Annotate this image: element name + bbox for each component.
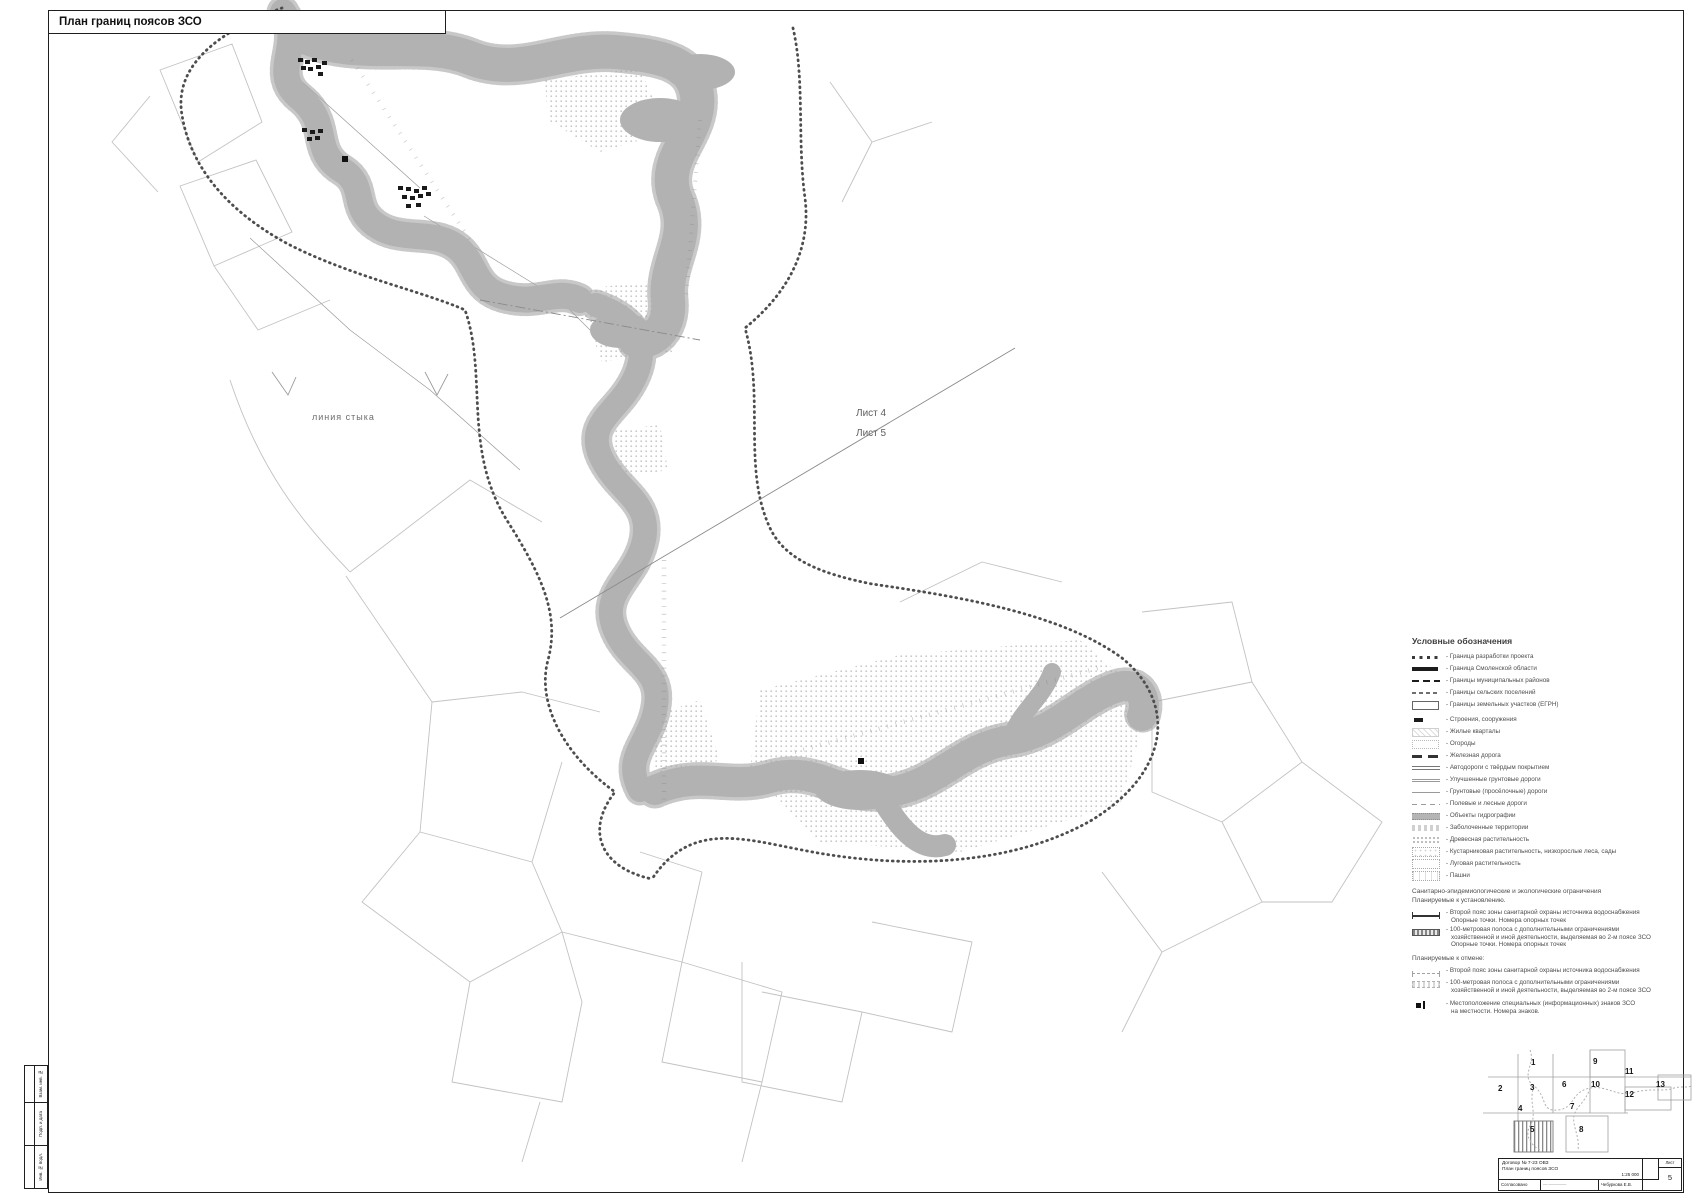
- legend-item-label: - Улучшенные грунтовые дороги: [1446, 776, 1541, 784]
- legend-item-label: - 100-метровая полоса с дополнительными …: [1446, 979, 1651, 994]
- legend-item: - Пашни: [1412, 870, 1697, 882]
- paved-road-symbol: [1412, 766, 1440, 770]
- sheet-number: 10: [1591, 1081, 1600, 1089]
- info-sign-symbol: [1416, 1003, 1421, 1008]
- legend-item-label: - Границы земельных участков (ЕГРН): [1446, 701, 1559, 709]
- strip-100m-cancel-symbol: [1412, 981, 1440, 988]
- district-boundary-layer: [480, 300, 1015, 618]
- sheet-number: 9: [1593, 1058, 1597, 1066]
- side-cell: Подп. и дата: [24, 1102, 48, 1146]
- drawing-sheet: { "page": { "title": "План границ поясов…: [0, 0, 1697, 1200]
- shrub-symbol: [1412, 847, 1440, 857]
- doc-title: План границ поясов ЗСО: [1502, 1167, 1639, 1173]
- title-block-spacer: [1643, 1159, 1659, 1180]
- legend-item: - Местоположение специальных (информацио…: [1412, 1000, 1697, 1015]
- legend-item-label: - Граница Смоленской области: [1446, 665, 1537, 673]
- side-cell-label: Инв. № подл.: [38, 1153, 43, 1181]
- planned-cancel-header: Планируемые к отмене:: [1412, 955, 1697, 963]
- side-cell-label: Подп. и дата: [38, 1111, 43, 1137]
- legend-item: - Грунтовые (просёлочные) дороги: [1412, 786, 1697, 798]
- legend-item-label: - Пашни: [1446, 872, 1470, 880]
- legend-item-label: - Граница разработки проекта: [1446, 653, 1534, 661]
- railway-symbol: [1412, 755, 1440, 758]
- sheet-number: 13: [1656, 1081, 1665, 1089]
- parcel-boundary-symbol: [1412, 701, 1439, 710]
- title-block: Договор № 7-23 ОВЗ План границ поясов ЗС…: [1498, 1158, 1682, 1191]
- legend-item-label: - Второй пояс зоны санитарной охраны ист…: [1446, 967, 1640, 975]
- scale-value: 1:25 000: [1621, 1172, 1639, 1178]
- legend-item-label: - 100-метровая полоса с дополнительными …: [1446, 926, 1651, 949]
- legend-item-label: - Строения, сооружения: [1446, 716, 1517, 724]
- sheet-cell: Лист 5: [1659, 1159, 1681, 1190]
- legend-item-label: - Жилые кварталы: [1446, 728, 1500, 736]
- legend-item-label: - Местоположение специальных (информацио…: [1446, 1000, 1635, 1015]
- sheet-number: 7: [1570, 1103, 1574, 1111]
- legend: Условные обозначения - Граница разработк…: [1412, 636, 1697, 1017]
- sheet4-label: Лист 4: [856, 408, 886, 419]
- oblast-boundary-symbol: [1412, 667, 1438, 671]
- second-belt-cancel-symbol: [1412, 973, 1440, 974]
- improved-dirt-road-symbol: [1412, 779, 1440, 782]
- parcels-layer: [112, 44, 1382, 1162]
- meadow-symbol: [1412, 859, 1440, 869]
- signatory-cell: Чебуркова Е.В.: [1599, 1180, 1643, 1190]
- legend-item-label: - Огороды: [1446, 740, 1475, 748]
- side-stamp-strip: Взам. инв. № Подп. и дата Инв. № подл.: [24, 1066, 48, 1189]
- field-road-symbol: [1412, 804, 1440, 805]
- sheet-index-grid: [1478, 1042, 1693, 1154]
- legend-item-label: - Границы муниципальных районов: [1446, 677, 1550, 685]
- legend-item: - Древесная растительность: [1412, 834, 1697, 846]
- side-cell: Взам. инв. №: [24, 1065, 48, 1103]
- signature-line-cell: —·————: [1541, 1180, 1599, 1190]
- legend-item-label: - Луговая растительность: [1446, 860, 1521, 868]
- planned-establish-header: Планируемые к установлению.: [1412, 897, 1697, 905]
- legend-item: - Полевые и лесные дороги: [1412, 798, 1697, 810]
- title-block-bottom-row: Согласовано —·———— Чебуркова Е.В.: [1499, 1180, 1659, 1190]
- settlement-boundary-symbol: [1412, 692, 1440, 693]
- legend-item: - Граница Смоленской области: [1412, 663, 1697, 675]
- legend-item: - Граница разработки проекта: [1412, 651, 1697, 663]
- sheet-number: 1: [1531, 1059, 1535, 1067]
- legend-item-label: - Кустарниковая растительность, низкорос…: [1446, 848, 1616, 856]
- side-cell: Инв. № подл.: [24, 1145, 48, 1189]
- legend-item: - Границы земельных участков (ЕГРН): [1412, 699, 1697, 711]
- legend-item: - Границы муниципальных районов: [1412, 675, 1697, 687]
- legend-item: - Границы сельских поселений: [1412, 687, 1697, 699]
- legend-item-label: - Автодороги с твёрдым покрытием: [1446, 764, 1549, 772]
- legend-item: - 100-метровая полоса с дополнительными …: [1412, 926, 1697, 949]
- map-canvas: [0, 0, 1697, 1200]
- dirt-road-symbol: [1412, 792, 1440, 793]
- legend-item: - 100-метровая полоса с дополнительными …: [1412, 979, 1697, 994]
- sheet-cell-label: Лист: [1659, 1159, 1681, 1168]
- legend-item: - Автодороги с твёрдым покрытием: [1412, 762, 1697, 774]
- garden-symbol: [1412, 740, 1439, 749]
- wetland-symbol: [1412, 825, 1440, 831]
- sheet-number: 4: [1518, 1105, 1522, 1113]
- legend-item: - Второй пояс зоны санитарной охраны ист…: [1412, 909, 1697, 924]
- legend-header: Условные обозначения: [1412, 636, 1697, 646]
- legend-item: - Заболоченные территории: [1412, 822, 1697, 834]
- legend-item: - Жилые кварталы: [1412, 726, 1697, 738]
- legend-item: - Железная дорога: [1412, 750, 1697, 762]
- page-title-box: План границ поясов ЗСО: [48, 10, 446, 34]
- title-block-main: Договор № 7-23 ОВЗ План границ поясов ЗС…: [1499, 1159, 1643, 1180]
- hydrography-symbol: [1412, 813, 1440, 820]
- legend-item: - Кустарниковая растительность, низкорос…: [1412, 846, 1697, 858]
- legend-item-label: - Второй пояс зоны санитарной охраны ист…: [1446, 909, 1640, 924]
- approved-cell: Согласовано: [1499, 1180, 1541, 1190]
- sheet-number: 2: [1498, 1085, 1502, 1093]
- legend-item-label: - Заболоченные территории: [1446, 824, 1528, 832]
- project-boundary-symbol: [1412, 656, 1440, 659]
- legend-item: - Улучшенные грунтовые дороги: [1412, 774, 1697, 786]
- sheet5-label: Лист 5: [856, 428, 886, 439]
- river-layer: [283, 12, 1144, 846]
- sheet-number: 11: [1625, 1068, 1633, 1076]
- legend-item: - Второй пояс зоны санитарной охраны ист…: [1412, 967, 1697, 977]
- strip-100m-symbol: [1412, 929, 1440, 936]
- legend-item-label: - Грунтовые (просёлочные) дороги: [1446, 788, 1547, 796]
- forest-symbol: [1412, 836, 1440, 844]
- sheet-number: 6: [1562, 1081, 1566, 1089]
- district-boundary-symbol: [1412, 680, 1440, 683]
- seam-line-label: линия стыка: [312, 412, 375, 422]
- sheet-index-map: 1 2 3 4 5 6 7 8 9 10 11 12 13: [1478, 1042, 1693, 1154]
- legend-item-label: - Древесная растительность: [1446, 836, 1529, 844]
- legend-item-label: - Границы сельских поселений: [1446, 689, 1536, 697]
- sheet-number: 12: [1625, 1091, 1634, 1099]
- second-belt-symbol: [1412, 915, 1440, 917]
- legend-item: - Огороды: [1412, 738, 1697, 750]
- legend-item: - Строения, сооружения: [1412, 714, 1697, 726]
- sheet-number-current: 5: [1530, 1126, 1534, 1134]
- legend-item: - Луговая растительность: [1412, 858, 1697, 870]
- residential-quarter-symbol: [1412, 728, 1439, 737]
- side-cell-label: Взам. инв. №: [38, 1070, 43, 1098]
- legend-item: - Объекты гидрографии: [1412, 810, 1697, 822]
- legend-item-label: - Железная дорога: [1446, 752, 1501, 760]
- sheet-cell-number: 5: [1659, 1168, 1681, 1188]
- sheet-number: 8: [1579, 1126, 1583, 1134]
- empty-cell: [1643, 1180, 1659, 1190]
- legend-item-label: - Полевые и лесные дороги: [1446, 800, 1527, 808]
- page-title: План границ поясов ЗСО: [59, 16, 202, 28]
- legend-item-label: - Объекты гидрографии: [1446, 812, 1516, 820]
- sheet-number: 3: [1530, 1084, 1534, 1092]
- sanitary-section-header: Санитарно-эпидемиологические и экологиче…: [1412, 888, 1697, 896]
- arable-symbol: [1412, 871, 1440, 881]
- building-symbol: [1414, 718, 1423, 723]
